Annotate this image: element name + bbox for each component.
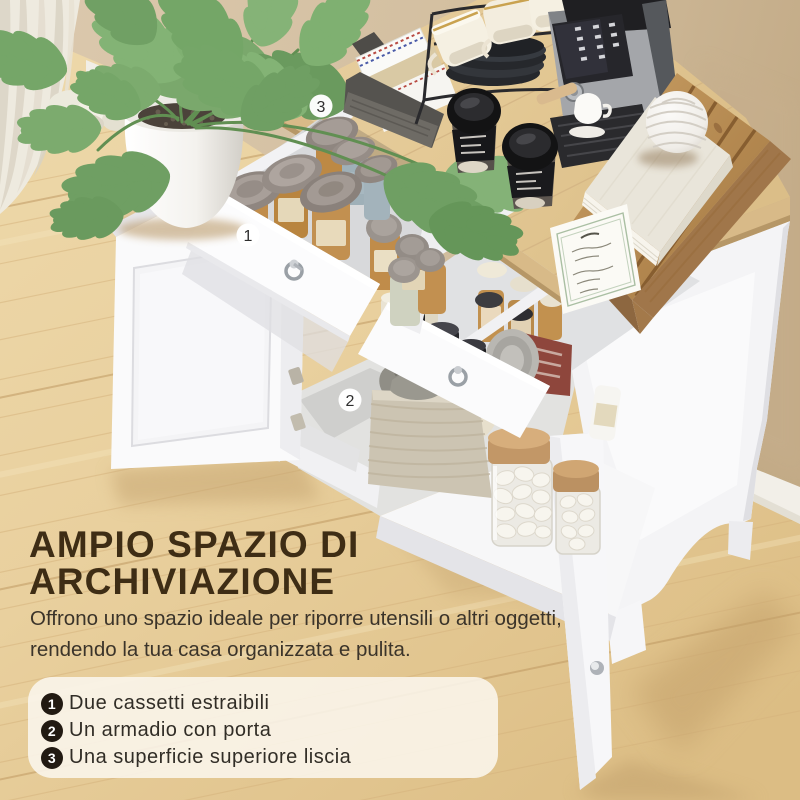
svg-text:2: 2 [346, 393, 355, 410]
svg-text:3: 3 [317, 99, 326, 116]
svg-text:1: 1 [244, 228, 253, 245]
